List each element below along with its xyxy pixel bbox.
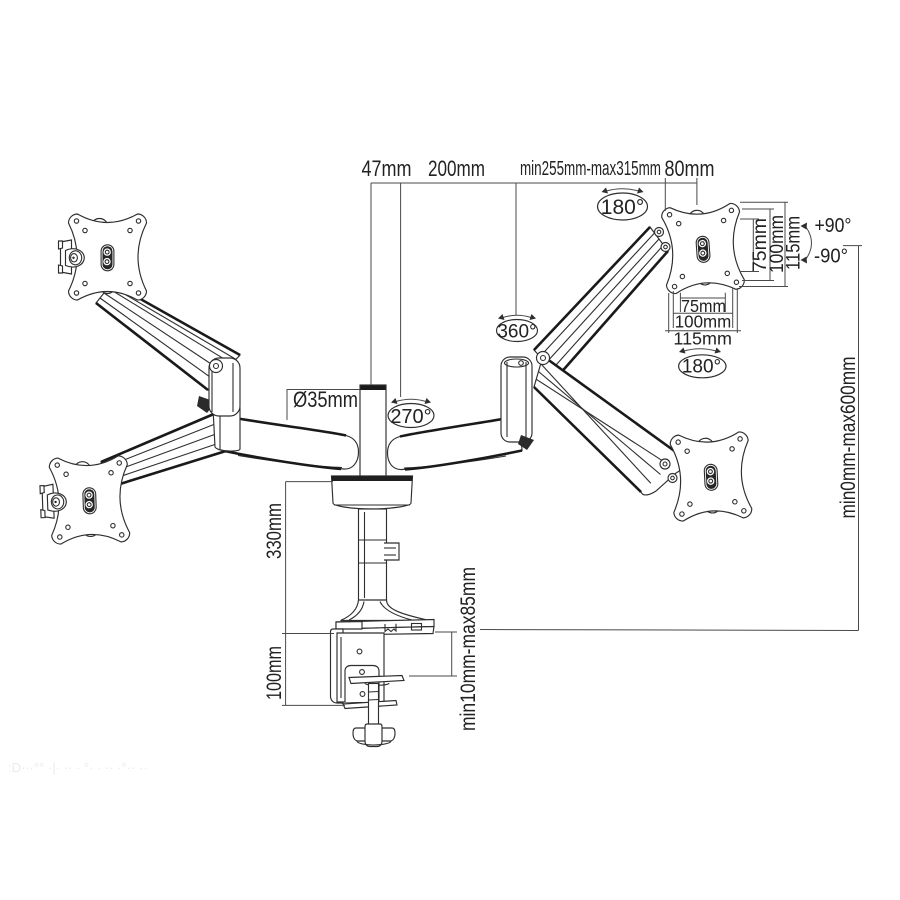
svg-text:Ø35mm: Ø35mm: [293, 387, 358, 412]
svg-text:80mm: 80mm: [665, 156, 715, 181]
svg-text:min255mm-max315mm: min255mm-max315mm: [520, 158, 661, 180]
svg-text:115mm: 115mm: [784, 216, 805, 270]
svg-text:115mm: 115mm: [673, 329, 732, 349]
svg-text:+90°: +90°: [815, 215, 852, 237]
svg-text:360°: 360°: [497, 322, 536, 343]
svg-text:min10mm-max85mm: min10mm-max85mm: [457, 567, 480, 731]
svg-text:270°: 270°: [390, 406, 431, 428]
svg-text:180°: 180°: [682, 357, 721, 378]
svg-text:100mm: 100mm: [263, 646, 286, 700]
svg-text:min0mm-max600mm: min0mm-max600mm: [836, 357, 860, 519]
svg-text:47mm: 47mm: [362, 156, 412, 181]
svg-text:200mm: 200mm: [428, 156, 485, 181]
svg-text:180°: 180°: [601, 196, 644, 219]
svg-text:330mm: 330mm: [263, 503, 286, 559]
svg-text::D···°° ·|· ·· · °· · ··: :D···°° ·|· ·· · °· · ·· ·°·· ··: [8, 760, 148, 775]
svg-text:-90°: -90°: [814, 246, 848, 268]
